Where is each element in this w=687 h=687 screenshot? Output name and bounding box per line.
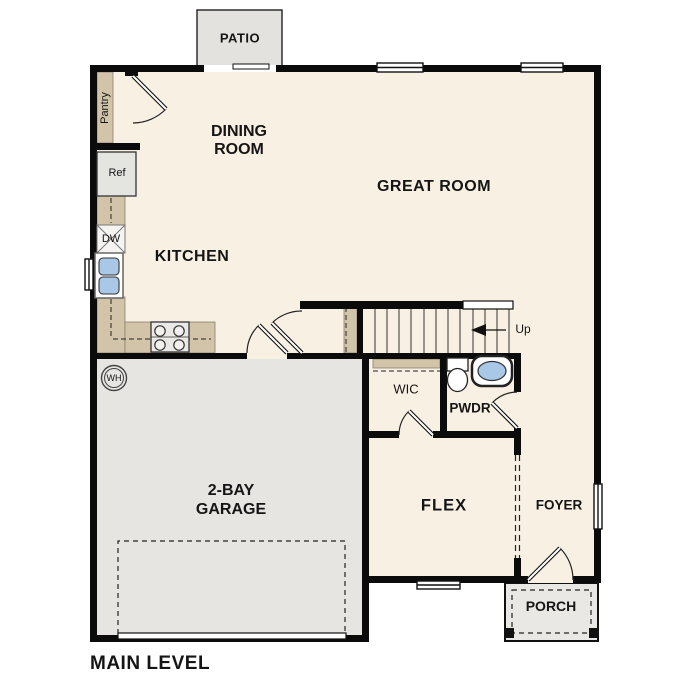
label-refrigerator: Ref <box>108 167 125 179</box>
wall-pwdr-right-a <box>514 359 521 392</box>
label-wic: WIC <box>393 382 418 397</box>
label-flex: FLEX <box>421 497 467 516</box>
label-pantry: Pantry <box>99 92 111 124</box>
label-foyer: FOYER <box>536 498 583 513</box>
label-porch: PORCH <box>526 598 577 614</box>
plan-title: MAIN LEVEL <box>90 653 210 675</box>
wall-flex-top-b <box>433 431 521 438</box>
wall-wic-pwdr <box>440 359 447 431</box>
wall-garage-right-int <box>362 359 369 576</box>
window-foyer <box>594 484 602 529</box>
kitchen-sink <box>95 253 123 298</box>
label-pwdr: PWDR <box>449 401 490 416</box>
label-dining-room: DINING ROOM <box>211 123 267 159</box>
window-great-room-2 <box>521 63 563 72</box>
floor-plan: PATIO Pantry DINING ROOM GREAT ROOM Ref … <box>0 0 687 687</box>
label-water-heater: WH <box>107 373 122 383</box>
label-dining-line2: ROOM <box>211 141 267 159</box>
label-garage-line1: 2-BAY <box>196 481 266 500</box>
label-patio: PATIO <box>220 31 260 46</box>
label-dining-line1: DINING <box>211 123 267 141</box>
wall-stair-left <box>357 301 363 353</box>
wall-patio-stub <box>125 65 138 76</box>
label-garage: 2-BAY GARAGE <box>196 481 266 519</box>
label-dishwasher: DW <box>102 233 120 245</box>
wall-pantry-bottom <box>97 143 140 150</box>
window-great-room-1 <box>377 63 423 72</box>
vanity-sink <box>472 356 512 386</box>
garage-overhead-door <box>118 633 346 639</box>
range <box>151 322 189 352</box>
toilet <box>447 358 468 392</box>
wall-flex-right-b <box>514 558 521 583</box>
porch-post <box>505 628 514 638</box>
label-garage-line2: GARAGE <box>196 500 266 519</box>
window-flex <box>417 581 460 589</box>
front-door-opening <box>528 576 573 583</box>
wall-left <box>90 65 97 642</box>
stair-wall-tan <box>344 305 357 353</box>
garage-door-opening <box>247 353 287 359</box>
wic-shelf <box>373 359 440 368</box>
label-great-room: GREAT ROOM <box>377 178 491 196</box>
sliding-door-panel <box>233 64 269 69</box>
wall-flex-top-a <box>369 431 399 438</box>
stair-rail <box>463 301 513 309</box>
label-kitchen: KITCHEN <box>155 248 230 266</box>
window-kitchen-sink <box>85 259 93 290</box>
wall-garage-right-ext <box>362 576 369 642</box>
label-stairs-up: Up <box>515 322 530 336</box>
wall-garage-top-a <box>97 353 247 359</box>
wall-stair-top <box>300 301 463 309</box>
porch-post <box>589 628 598 638</box>
wall-pwdr-right-b <box>514 428 521 455</box>
